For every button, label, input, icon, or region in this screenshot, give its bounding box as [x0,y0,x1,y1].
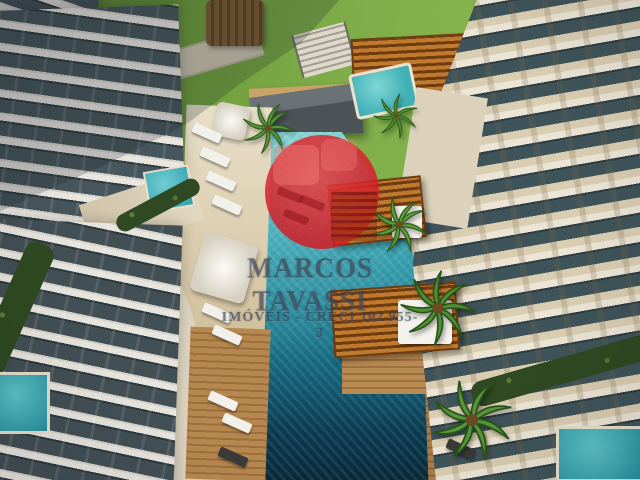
red-tinted-umbrella [273,145,319,185]
watermark-creci-number: IMÓVEIS - CRECI 102.955-3 [220,310,420,342]
wooden-picnic-table [206,0,264,46]
palm-tree [428,376,516,464]
red-tinted-pergola [331,191,377,241]
private-pool-bottom-left [0,372,50,434]
red-tinted-umbrella [321,139,357,171]
watermark-agency-name: MARCOS TAVASSI [198,252,422,318]
property-rendering-photo: MARCOS TAVASSI IMÓVEIS - CRECI 102.955-3 [0,0,640,480]
red-tinted-lounger [282,208,309,225]
private-pool-bottom-right [556,426,640,480]
red-tinted-lounger [298,194,325,211]
palm-tree [372,92,420,140]
watermark-red-circle [265,135,379,249]
